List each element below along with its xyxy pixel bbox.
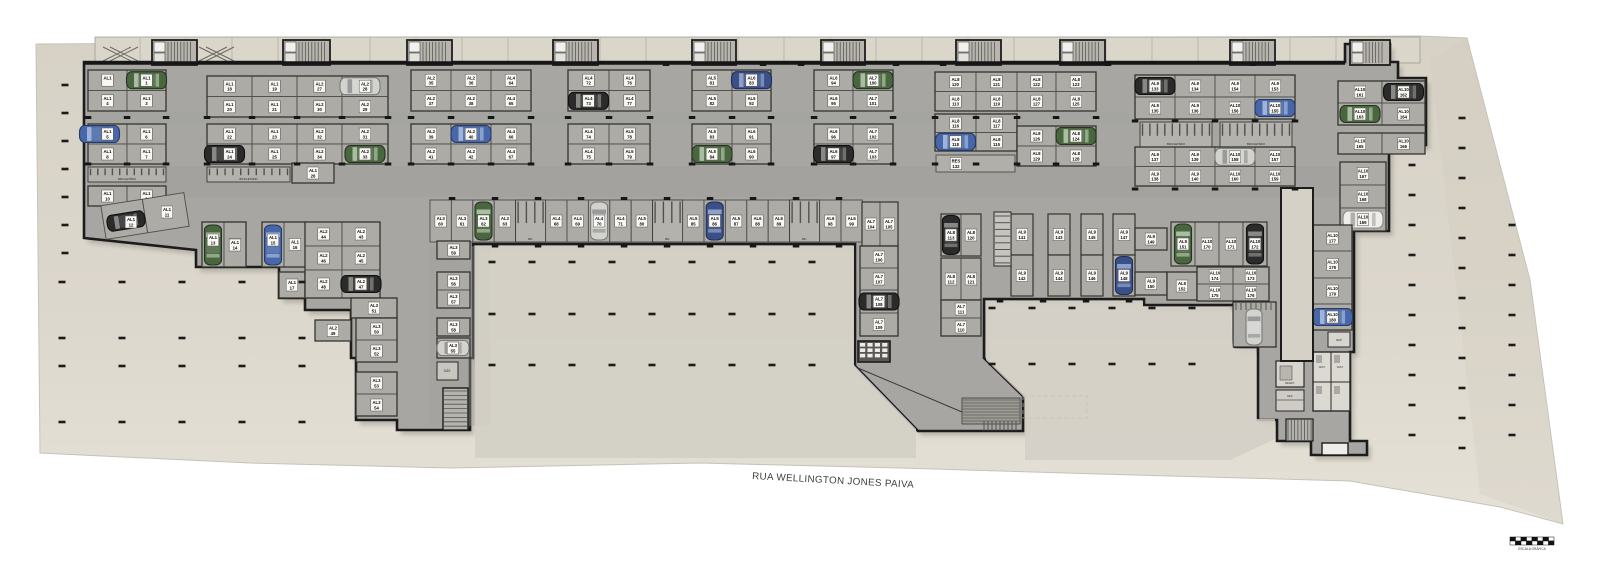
svg-text:151: 151 (1179, 244, 1187, 249)
svg-text:53: 53 (374, 383, 379, 388)
svg-text:157: 157 (1271, 157, 1279, 162)
svg-text:140: 140 (1191, 177, 1199, 182)
svg-text:ESCALA GRÁFICA: ESCALA GRÁFICA (1518, 547, 1546, 551)
svg-text:62: 62 (481, 221, 486, 226)
svg-text:156: 156 (1231, 108, 1239, 113)
svg-text:34: 34 (317, 154, 322, 159)
svg-text:20: 20 (227, 107, 232, 112)
svg-text:27: 27 (317, 87, 322, 92)
svg-text:153: 153 (1271, 86, 1279, 91)
svg-text:177: 177 (1329, 238, 1337, 243)
svg-text:98: 98 (828, 221, 833, 226)
svg-text:123: 123 (1072, 82, 1080, 87)
svg-text:56: 56 (451, 281, 456, 286)
svg-text:118: 118 (952, 142, 960, 147)
svg-text:172: 172 (1251, 244, 1259, 249)
svg-text:AL9: AL9 (1191, 171, 1200, 176)
svg-text:89: 89 (777, 221, 782, 226)
svg-text:68: 68 (554, 221, 559, 226)
svg-text:61: 61 (460, 221, 465, 226)
svg-text:54: 54 (374, 405, 379, 410)
svg-text:32: 32 (317, 134, 322, 139)
svg-text:99: 99 (849, 221, 854, 226)
svg-text:112: 112 (948, 279, 956, 284)
svg-text:117: 117 (993, 124, 1001, 129)
svg-text:37: 37 (429, 101, 434, 106)
svg-text:DEP.: DEP. (1287, 395, 1293, 398)
svg-text:170: 170 (1203, 244, 1211, 249)
svg-text:142: 142 (1018, 276, 1026, 281)
svg-text:121: 121 (967, 279, 975, 284)
svg-text:158: 158 (1231, 157, 1239, 162)
svg-text:97: 97 (831, 154, 836, 159)
svg-text:AL8: AL8 (951, 137, 960, 142)
svg-text:102: 102 (869, 134, 877, 139)
svg-text:REFEIT.: REFEIT. (1285, 381, 1295, 385)
svg-text:33: 33 (363, 154, 368, 159)
svg-text:26: 26 (311, 173, 316, 178)
svg-text:14: 14 (233, 245, 238, 250)
svg-text:149: 149 (1147, 239, 1155, 244)
svg-text:72: 72 (586, 81, 591, 86)
svg-text:85: 85 (691, 221, 696, 226)
svg-text:BICICLETÁRIO: BICICLETÁRIO (1247, 142, 1265, 146)
svg-text:51: 51 (372, 308, 377, 313)
svg-text:12: 12 (129, 222, 134, 227)
svg-text:23: 23 (272, 134, 277, 139)
svg-text:AL10: AL10 (1270, 171, 1281, 176)
svg-text:81: 81 (710, 81, 715, 86)
svg-text:76: 76 (627, 81, 632, 86)
svg-text:60: 60 (438, 221, 443, 226)
svg-text:107: 107 (875, 279, 883, 284)
svg-text:171: 171 (1227, 244, 1235, 249)
svg-text:GÁS: GÁS (444, 369, 451, 373)
svg-text:74: 74 (586, 134, 591, 139)
svg-text:87: 87 (734, 221, 739, 226)
svg-text:21: 21 (272, 107, 277, 112)
svg-text:150: 150 (1147, 284, 1155, 289)
svg-text:141: 141 (1018, 235, 1026, 240)
svg-text:139: 139 (1191, 157, 1199, 162)
svg-text:152: 152 (1178, 286, 1186, 291)
svg-text:90: 90 (749, 154, 754, 159)
svg-text:120: 120 (967, 235, 975, 240)
svg-text:67: 67 (509, 154, 514, 159)
svg-text:30: 30 (317, 107, 322, 112)
svg-text:35: 35 (429, 81, 434, 86)
svg-text:113: 113 (952, 102, 960, 107)
svg-text:128: 128 (1072, 156, 1080, 161)
svg-text:41: 41 (429, 154, 434, 159)
svg-text:105: 105 (885, 224, 893, 229)
svg-text:111: 111 (958, 309, 965, 314)
svg-text:169: 169 (1359, 220, 1367, 225)
svg-text:80: 80 (640, 221, 645, 226)
svg-text:49: 49 (331, 331, 336, 336)
svg-text:162: 162 (1400, 92, 1408, 97)
svg-text:BIC.: BIC. (665, 237, 670, 241)
svg-text:66: 66 (509, 134, 514, 139)
svg-text:167: 167 (1359, 174, 1367, 179)
svg-text:96: 96 (831, 134, 836, 139)
svg-text:122: 122 (1033, 82, 1041, 87)
svg-text:143: 143 (1055, 235, 1063, 240)
svg-text:166: 166 (1400, 144, 1408, 149)
svg-text:65: 65 (509, 101, 514, 106)
svg-text:147: 147 (1120, 235, 1128, 240)
svg-text:83: 83 (710, 134, 715, 139)
svg-text:50: 50 (374, 329, 379, 334)
svg-text:47: 47 (359, 284, 364, 289)
svg-text:91: 91 (749, 134, 754, 139)
svg-text:AL9: AL9 (1151, 152, 1160, 157)
svg-text:71: 71 (618, 221, 623, 226)
svg-text:AL10: AL10 (1230, 152, 1241, 157)
svg-text:48: 48 (321, 284, 326, 289)
svg-text:116: 116 (952, 124, 960, 129)
svg-text:BIC.: BIC. (802, 237, 807, 241)
svg-text:108: 108 (875, 302, 883, 307)
svg-text:19: 19 (272, 87, 277, 92)
svg-text:79: 79 (627, 154, 632, 159)
svg-text:86: 86 (712, 221, 717, 226)
svg-text:145: 145 (1088, 235, 1096, 240)
svg-text:45: 45 (359, 258, 364, 263)
svg-text:AL8: AL8 (992, 137, 1001, 142)
svg-text:36: 36 (469, 81, 474, 86)
svg-text:161: 161 (1356, 92, 1364, 97)
svg-text:136: 136 (1191, 108, 1199, 113)
svg-text:17: 17 (290, 285, 295, 290)
svg-text:52: 52 (374, 351, 379, 356)
svg-text:69: 69 (575, 221, 580, 226)
svg-text:165: 165 (1356, 144, 1364, 149)
svg-text:10: 10 (105, 196, 110, 201)
svg-text:AL1: AL1 (103, 76, 112, 81)
svg-text:113: 113 (948, 235, 956, 240)
svg-text:31: 31 (363, 134, 368, 139)
svg-text:77: 77 (627, 101, 632, 106)
svg-text:22: 22 (227, 134, 232, 139)
svg-text:28: 28 (363, 87, 368, 92)
svg-text:100: 100 (869, 81, 877, 86)
svg-text:88: 88 (755, 221, 760, 226)
svg-text:160: 160 (1231, 177, 1239, 182)
svg-text:120: 120 (952, 82, 960, 87)
svg-text:95: 95 (831, 101, 836, 106)
svg-text:159: 159 (1271, 177, 1279, 182)
svg-text:59: 59 (451, 250, 456, 255)
svg-text:75: 75 (586, 154, 591, 159)
svg-text:127: 127 (1033, 102, 1041, 107)
svg-text:154: 154 (1231, 86, 1239, 91)
svg-text:15: 15 (271, 240, 276, 245)
svg-text:AL9: AL9 (1151, 171, 1160, 176)
svg-text:133: 133 (1151, 86, 1159, 91)
svg-text:DEP: DEP (1336, 338, 1342, 342)
svg-text:42: 42 (469, 154, 474, 159)
svg-text:101: 101 (869, 101, 877, 106)
svg-text:175: 175 (1211, 293, 1219, 298)
svg-text:AL10: AL10 (1270, 152, 1281, 157)
svg-text:24: 24 (227, 154, 232, 159)
svg-text:73: 73 (586, 101, 591, 106)
svg-text:115: 115 (993, 142, 1001, 147)
svg-text:179: 179 (1329, 291, 1337, 296)
svg-text:174: 174 (1211, 276, 1219, 281)
svg-text:103: 103 (869, 154, 877, 159)
svg-text:168: 168 (1359, 197, 1367, 202)
svg-text:78: 78 (627, 134, 632, 139)
svg-text:AL9: AL9 (1191, 152, 1200, 157)
svg-text:25: 25 (272, 154, 277, 159)
svg-text:55: 55 (451, 348, 456, 353)
svg-text:83: 83 (749, 81, 754, 86)
svg-text:BICICLETÁRIO: BICICLETÁRIO (1167, 142, 1185, 146)
svg-text:BICICLETÁRIO: BICICLETÁRIO (239, 177, 257, 181)
svg-text:AL10: AL10 (1230, 171, 1241, 176)
svg-text:173: 173 (1247, 276, 1255, 281)
svg-text:163: 163 (1356, 114, 1364, 119)
svg-text:126: 126 (1033, 136, 1041, 141)
svg-text:94: 94 (831, 81, 836, 86)
svg-text:57: 57 (451, 299, 456, 304)
svg-text:16: 16 (293, 245, 298, 250)
svg-text:155: 155 (1271, 108, 1279, 113)
svg-text:176: 176 (1247, 293, 1255, 298)
svg-text:138: 138 (1151, 177, 1159, 182)
svg-text:104: 104 (867, 224, 875, 229)
svg-text:84: 84 (710, 154, 715, 159)
svg-text:63: 63 (503, 221, 508, 226)
svg-text:135: 135 (1151, 108, 1159, 113)
svg-text:148: 148 (1120, 276, 1128, 281)
svg-text:124: 124 (1072, 136, 1080, 141)
svg-text:BIC.: BIC. (528, 237, 533, 241)
svg-text:VEST.: VEST. (1337, 366, 1344, 369)
svg-text:125: 125 (1072, 102, 1080, 107)
svg-text:43: 43 (359, 234, 364, 239)
svg-text:82: 82 (710, 101, 715, 106)
svg-text:92: 92 (749, 101, 754, 106)
svg-text:46: 46 (321, 258, 326, 263)
svg-text:144: 144 (1055, 276, 1063, 281)
svg-text:121: 121 (993, 82, 1001, 87)
svg-text:64: 64 (509, 81, 514, 86)
svg-text:119: 119 (993, 102, 1001, 107)
svg-text:11: 11 (165, 212, 170, 217)
svg-text:134: 134 (1191, 86, 1199, 91)
svg-text:178: 178 (1329, 265, 1337, 270)
svg-text:164: 164 (1400, 114, 1408, 119)
svg-text:44: 44 (321, 234, 326, 239)
svg-text:VEST.: VEST. (1319, 366, 1326, 369)
svg-text:38: 38 (469, 101, 474, 106)
svg-text:70: 70 (597, 221, 602, 226)
svg-text:BICICLETÁRIO: BICICLETÁRIO (118, 177, 136, 181)
svg-text:40: 40 (469, 134, 474, 139)
svg-text:18: 18 (227, 87, 232, 92)
svg-text:110: 110 (958, 327, 966, 332)
svg-text:39: 39 (429, 134, 434, 139)
svg-text:109: 109 (875, 325, 883, 330)
svg-text:106: 106 (875, 257, 883, 262)
svg-text:13: 13 (211, 240, 216, 245)
svg-text:146: 146 (1088, 276, 1096, 281)
svg-text:58: 58 (451, 327, 456, 332)
svg-text:132: 132 (952, 164, 960, 169)
svg-text:129: 129 (1033, 156, 1041, 161)
svg-text:29: 29 (363, 107, 368, 112)
svg-text:180: 180 (1329, 317, 1337, 322)
svg-text:137: 137 (1151, 157, 1159, 162)
